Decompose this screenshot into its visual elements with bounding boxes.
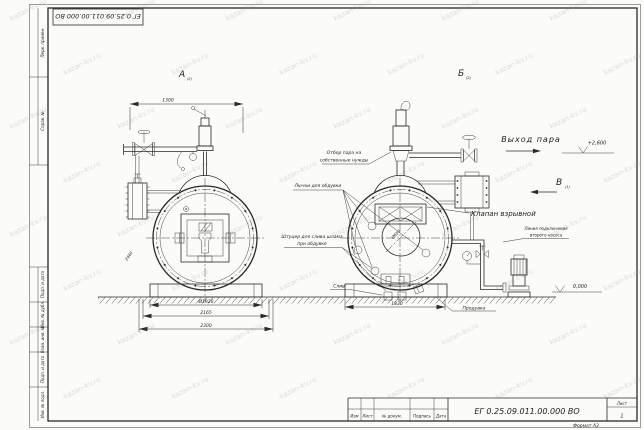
explosion-valve-port bbox=[375, 204, 426, 224]
view-b-label: Б bbox=[458, 69, 464, 79]
label-steam-out: Выход пара bbox=[501, 135, 561, 144]
tb-col-izm: Изм bbox=[350, 414, 358, 419]
pressure-gauge-front bbox=[190, 152, 197, 161]
dim-elev-zero: 0,000 bbox=[573, 284, 587, 290]
frame-label-inv-dubl: Инв. № дубл. bbox=[40, 301, 45, 328]
pressure-gauge-rear bbox=[463, 252, 481, 265]
svg-text:Штуцер для слива шлама: Штуцер для слива шлама bbox=[281, 234, 343, 240]
view-v-ref: (1) bbox=[565, 185, 571, 189]
tb-sheet-number: 1 bbox=[620, 414, 623, 420]
steam-piping-front bbox=[124, 144, 207, 176]
label-explosion-valve: Клапан взрывной bbox=[471, 210, 536, 218]
safety-valve-front bbox=[192, 107, 214, 151]
label-drain: Слив bbox=[330, 284, 382, 296]
svg-text:Отбор пара на: Отбор пара на bbox=[327, 150, 362, 156]
dim-elev-steam: +2,600 bbox=[588, 141, 607, 147]
title-block: Изм Лист № докум. Подпись Дата ЕГ 0.25.0… bbox=[348, 398, 637, 429]
label-steam-own: Отбор пара на собственные нужды bbox=[320, 150, 391, 164]
frame-label-vzam-inv: Взам. инв. № bbox=[40, 326, 45, 353]
tb-doc-number: ЕГ 0.25.09.011.00.000 ВО bbox=[474, 407, 579, 416]
safety-valve-rear bbox=[390, 101, 461, 176]
label-pump-line: Линия подключения второго насоса bbox=[503, 226, 569, 242]
view-a-ref: (2) bbox=[187, 77, 193, 81]
format-label: Формат А3 bbox=[573, 423, 599, 429]
elevation-zero: 0,000 bbox=[552, 284, 602, 292]
economizer-block bbox=[417, 172, 489, 240]
tb-sheet-label: Лист bbox=[616, 401, 628, 406]
dim-flange-diameter: 2440 bbox=[124, 250, 134, 262]
gate-valve-rear bbox=[461, 135, 477, 162]
view-a-front: А (2) 1300 bbox=[124, 70, 274, 332]
feed-pump bbox=[503, 255, 530, 297]
top-stamp-code: ЕГ 0.25.09.011.00.000 ВО bbox=[55, 12, 141, 20]
frame-label-inv-podl: Инв. № подл. bbox=[40, 391, 45, 419]
svg-text:собственные нужды: собственные нужды bbox=[320, 158, 369, 164]
dim-1300: 1300 bbox=[130, 98, 243, 134]
svg-text:Линия подключения: Линия подключения bbox=[523, 226, 568, 231]
svg-text:второго насоса: второго насоса bbox=[530, 233, 563, 238]
feedwater-piping bbox=[452, 240, 503, 290]
annotations: Выход пара +2,600 В (1) Клапан взрывной … bbox=[281, 135, 614, 312]
view-v-label: В bbox=[556, 178, 562, 188]
svg-text:Лючки для обдувки: Лючки для обдувки bbox=[294, 183, 342, 189]
view-a-label: А bbox=[178, 70, 185, 80]
drawing-sheet: Перв. примен. Справ. № Подп. и дата Инв.… bbox=[0, 0, 644, 430]
svg-text:Слив: Слив bbox=[333, 284, 345, 290]
gate-valve-front bbox=[133, 130, 155, 183]
svg-text:Продувка: Продувка bbox=[463, 306, 486, 312]
tb-col-list: Лист bbox=[361, 414, 373, 419]
siphon-pipe bbox=[177, 152, 182, 169]
left-frame-columns: Перв. примен. Справ. № Подп. и дата Инв.… bbox=[30, 8, 49, 421]
dim-base-mid: 2165 bbox=[200, 310, 212, 316]
frame-label-sprav-no: Справ. № bbox=[40, 111, 45, 130]
view-b-ref: (2) bbox=[466, 76, 472, 80]
sheet-frame bbox=[30, 5, 641, 428]
top-stamp: ЕГ 0.25.09.011.00.000 ВО bbox=[53, 9, 143, 25]
tb-col-sign: Подпись bbox=[413, 414, 432, 419]
tb-col-date: Дата bbox=[435, 414, 447, 419]
frame-label-perv-primen: Перв. примен. bbox=[40, 27, 45, 57]
frame-label-podp-data-2: Подп. и дата bbox=[40, 355, 45, 383]
svg-text:1300: 1300 bbox=[162, 98, 174, 104]
view-b-rear: Б (2) Ø650 bbox=[341, 69, 530, 310]
elevation-steam: +2,600 bbox=[562, 141, 614, 154]
dim-base-out: 2300 bbox=[200, 323, 212, 329]
svg-text:при обдувке: при обдувке bbox=[297, 241, 327, 247]
tb-col-doc: № докум. bbox=[381, 414, 402, 419]
ground-hatch bbox=[98, 297, 556, 304]
frame-label-podp-data-1: Подп. и дата bbox=[40, 270, 45, 298]
